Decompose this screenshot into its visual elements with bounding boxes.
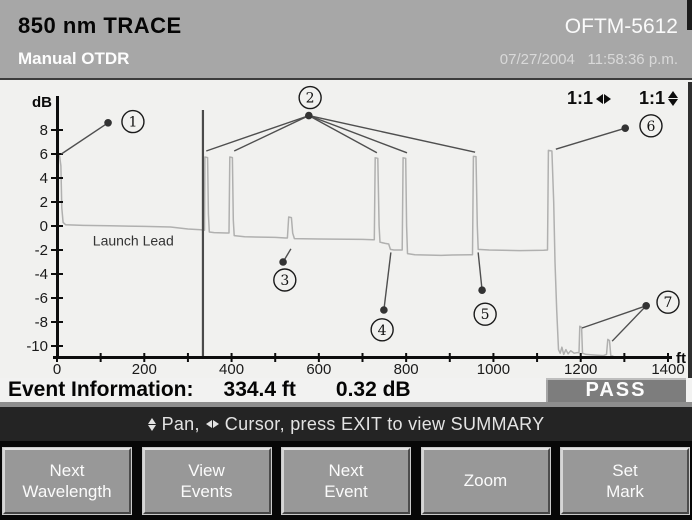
y-tick-label: -2 xyxy=(35,242,48,259)
y-tick-label: -6 xyxy=(35,290,48,307)
x-tick-label: 600 xyxy=(306,361,331,378)
trace-title: 850 nm TRACE xyxy=(18,13,182,39)
datetime-label: 07/27/2004 11:58:36 p.m. xyxy=(500,51,678,68)
y-tick-label: 4 xyxy=(40,170,48,187)
event-5-number: 5 xyxy=(481,307,490,323)
softkey-label: Events xyxy=(181,481,233,502)
next-wavelength-button[interactable]: Next Wavelength xyxy=(3,448,131,514)
set-mark-button[interactable]: Set Mark xyxy=(561,448,689,514)
softkey-label: Set xyxy=(612,460,638,481)
event-6-dot xyxy=(621,124,629,132)
model-number: OFTM-5612 xyxy=(565,15,678,39)
softkey-label: Next xyxy=(50,460,85,481)
left-right-arrows-icon xyxy=(596,94,611,104)
softkey-label: Wavelength xyxy=(22,481,111,502)
event-7-dot xyxy=(642,302,650,310)
horizontal-zoom-indicator: 1:1 xyxy=(567,88,611,109)
y-tick-label: 6 xyxy=(40,146,48,163)
event-5-leader-line xyxy=(478,252,482,290)
softkey-bar: Next Wavelength View Events Next Event Z… xyxy=(0,441,692,520)
y-tick-label: 2 xyxy=(40,194,48,211)
horizontal-zoom-value: 1:1 xyxy=(567,88,593,109)
y-tick-label: -8 xyxy=(35,314,48,331)
event-3-number: 3 xyxy=(280,273,289,289)
x-tick-label: 1000 xyxy=(477,361,510,378)
x-axis-unit-label: ft xyxy=(676,350,686,367)
event-1-number: 1 xyxy=(128,115,137,131)
x-tick-label: 1200 xyxy=(564,361,597,378)
event-6-number: 6 xyxy=(647,119,656,135)
cursor-hint-label: Cursor, press EXIT to view SUMMARY xyxy=(225,414,545,435)
event-7-number: 7 xyxy=(664,295,673,311)
event-4-dot xyxy=(380,306,388,314)
event-loss-value: 0.32 dB xyxy=(336,378,411,402)
y-tick-label: -10 xyxy=(26,338,48,355)
softkey-label: Zoom xyxy=(464,470,507,491)
next-event-button[interactable]: Next Event xyxy=(282,448,410,514)
event-4-number: 4 xyxy=(378,323,387,339)
header-row-1: 850 nm TRACE OFTM-5612 xyxy=(18,13,678,39)
scan-corner-mark xyxy=(687,0,692,30)
event-2-leader-line xyxy=(309,116,377,153)
view-events-button[interactable]: View Events xyxy=(143,448,271,514)
event-6-leader-line xyxy=(556,128,625,149)
event-1-leader-line xyxy=(61,123,108,154)
trace-plot: 86420-2-4-6-8-10020040060080010001200140… xyxy=(0,82,692,378)
softkey-label: Event xyxy=(324,481,367,502)
y-tick-label: -4 xyxy=(35,266,48,283)
y-tick-label: 8 xyxy=(40,122,48,139)
event-1-dot xyxy=(104,119,112,127)
event-2-number: 2 xyxy=(306,91,315,107)
event-4-leader-line xyxy=(384,252,391,310)
event-distance-value: 334.4 ft xyxy=(224,378,296,402)
status-hint-bar: Pan, Cursor, press EXIT to view SUMMARY xyxy=(0,407,692,441)
cursor-arrows-icon xyxy=(206,420,219,428)
event-2-leader-line xyxy=(234,116,309,151)
softkey-label: View xyxy=(188,460,225,481)
mode-label: Manual OTDR xyxy=(18,49,129,69)
vertical-zoom-indicator: 1:1 xyxy=(639,88,678,109)
pan-label: Pan, xyxy=(162,414,200,435)
x-tick-label: 800 xyxy=(394,361,419,378)
event-7-leader-line xyxy=(582,306,646,328)
x-tick-label: 0 xyxy=(53,361,61,378)
screen-right-edge xyxy=(688,82,692,406)
event-3-dot xyxy=(279,258,287,266)
otdr-trace xyxy=(57,150,613,356)
event-info-label: Event Information: xyxy=(8,378,194,402)
up-down-arrows-icon xyxy=(668,91,678,106)
y-tick-label: 0 xyxy=(40,218,48,235)
trace-chart: 86420-2-4-6-8-10020040060080010001200140… xyxy=(0,82,692,378)
launch-lead-label: Launch Lead xyxy=(93,232,174,248)
pass-status-badge: PASS xyxy=(546,378,686,402)
softkey-label: Next xyxy=(329,460,364,481)
x-tick-label: 400 xyxy=(219,361,244,378)
vertical-zoom-value: 1:1 xyxy=(639,88,665,109)
zoom-indicators: 1:1 1:1 xyxy=(567,88,678,109)
x-tick-label: 200 xyxy=(132,361,157,378)
event-info-bar: Event Information: 334.4 ft 0.32 dB PASS xyxy=(0,378,692,402)
header: 850 nm TRACE OFTM-5612 Manual OTDR 07/27… xyxy=(0,0,692,80)
pan-arrows-icon xyxy=(148,418,156,431)
header-row-2: Manual OTDR 07/27/2004 11:58:36 p.m. xyxy=(18,49,678,69)
event-5-dot xyxy=(478,286,486,294)
y-axis-unit-label: dB xyxy=(32,94,52,111)
zoom-button[interactable]: Zoom xyxy=(422,448,550,514)
event-2-dot xyxy=(305,112,313,120)
softkey-label: Mark xyxy=(606,481,644,502)
event-2-leader-line xyxy=(206,116,309,151)
otdr-screen: 850 nm TRACE OFTM-5612 Manual OTDR 07/27… xyxy=(0,0,692,520)
